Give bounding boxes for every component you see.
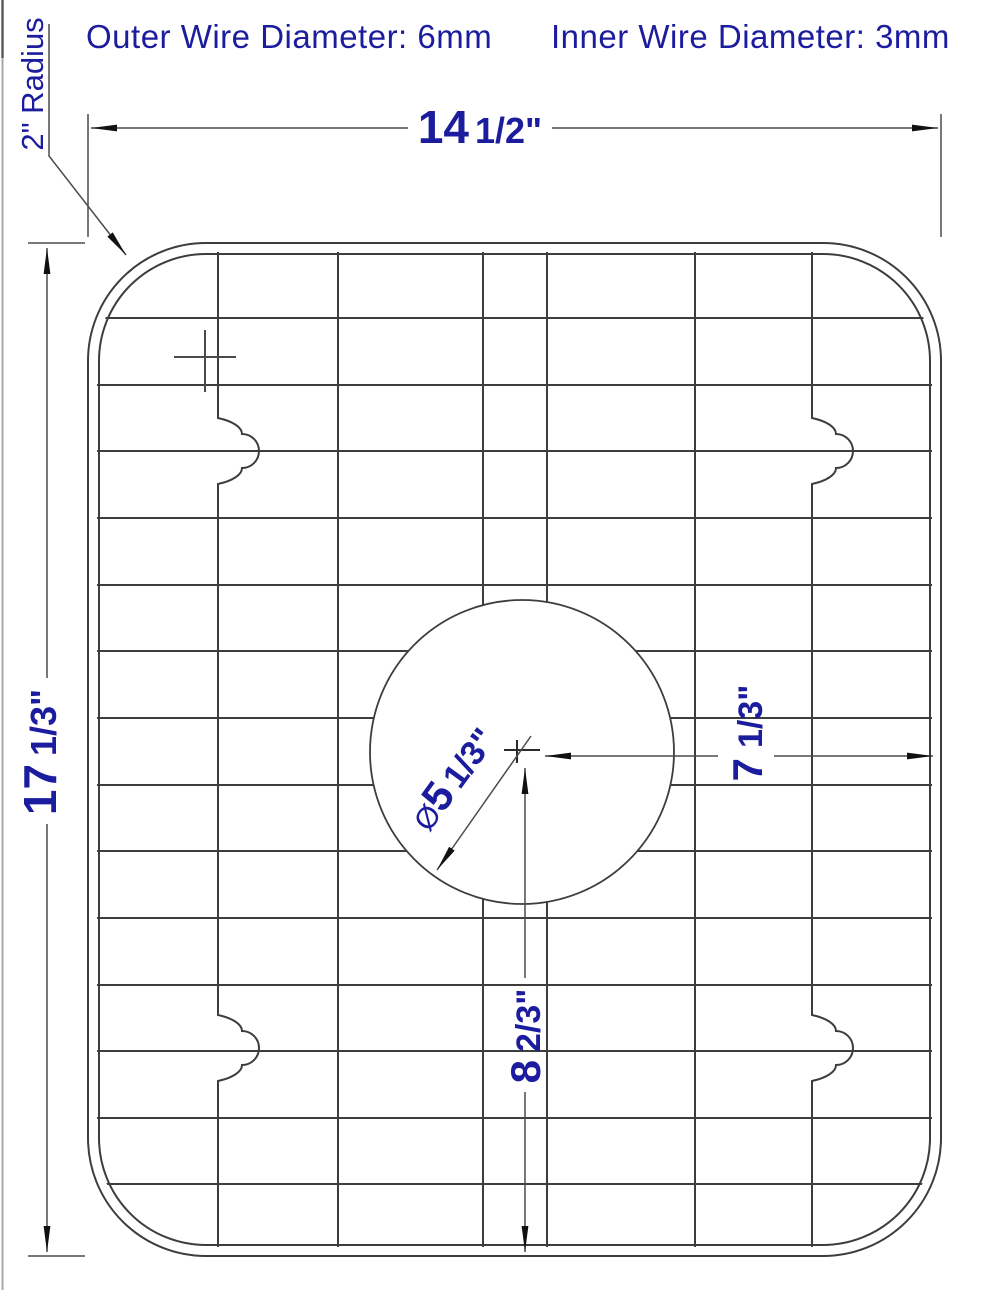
corner-radius-label: 2" Radius (15, 17, 50, 150)
notched-wire-left (218, 250, 259, 1248)
annotations: Outer Wire Diameter: 6mm Inner Wire Diam… (14, 17, 950, 1083)
width-dimension-text: 141/2" (418, 101, 542, 153)
drain-circle (370, 600, 674, 904)
sink-grid-spec-sheet: Outer Wire Diameter: 6mm Inner Wire Diam… (0, 0, 1000, 1290)
radius-center-mark (174, 330, 236, 392)
outer-wire-diameter-label: Outer Wire Diameter: 6mm (86, 18, 492, 55)
technical-drawing: Outer Wire Diameter: 6mm Inner Wire Diam… (0, 0, 1000, 1290)
height-dimension-text: 171/3" (14, 689, 66, 815)
notched-wire-right (812, 250, 853, 1248)
center-to-right-label: 71/3" (724, 685, 771, 782)
inner-wire-diameter-label: Inner Wire Diameter: 3mm (551, 18, 950, 55)
center-to-bottom-label: 82/3" (502, 989, 549, 1084)
